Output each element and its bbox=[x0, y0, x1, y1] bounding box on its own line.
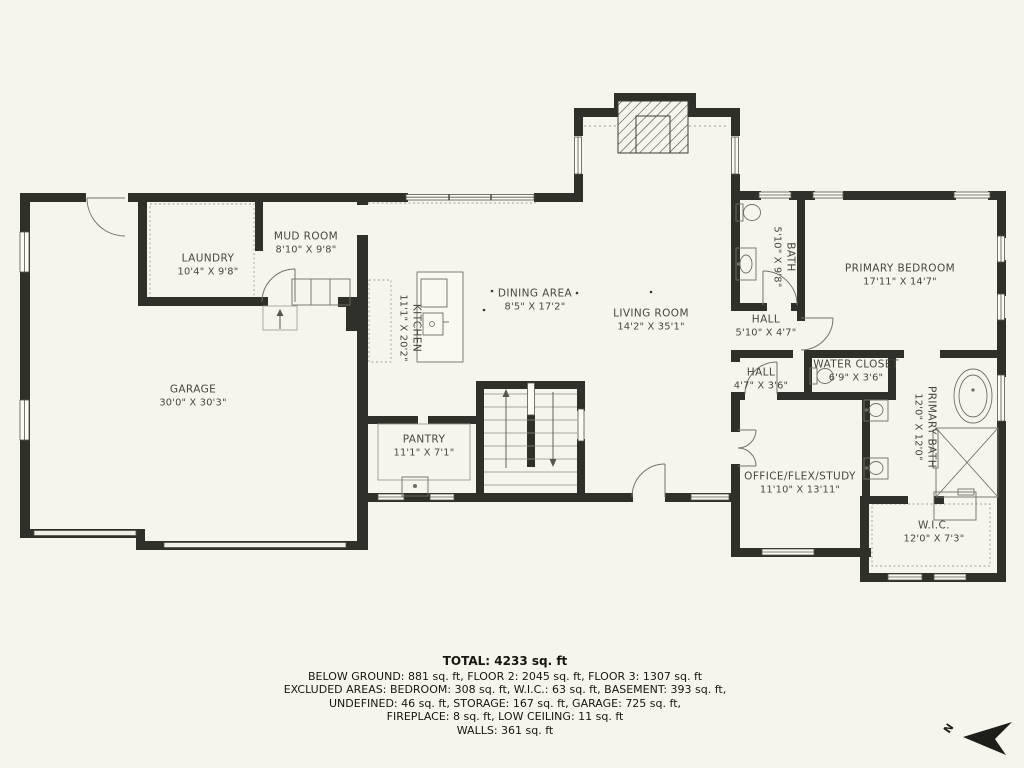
entry-arrow bbox=[277, 309, 284, 316]
room-name: KITCHEN bbox=[409, 294, 423, 361]
room-name: DINING AREA bbox=[498, 288, 572, 302]
room-name: LIVING ROOM bbox=[613, 308, 689, 322]
summary-line: EXCLUDED AREAS: BEDROOM: 308 sq. ft, W.I… bbox=[0, 683, 1010, 697]
room-name: OFFICE/FLEX/STUDY bbox=[744, 471, 856, 485]
soaking-tub bbox=[954, 369, 992, 423]
stairs-up-arrow bbox=[503, 389, 510, 397]
room-dims: 11'1" X 20'2" bbox=[396, 294, 409, 361]
room-name: GARAGE bbox=[159, 384, 226, 398]
room-name: MUD ROOM bbox=[274, 231, 338, 245]
room-name: PANTRY bbox=[394, 434, 455, 448]
room-dims: 10'4" X 9'8" bbox=[178, 266, 239, 279]
room-label-garage: GARAGE 30'0" X 30'3" bbox=[159, 384, 226, 411]
shower bbox=[933, 428, 998, 497]
room-dims: 5'10" X 4'7" bbox=[736, 327, 797, 340]
room-name: WATER CLOSET bbox=[813, 359, 898, 373]
room-label-dining-area: DINING AREA 8'5" X 17'2" bbox=[498, 288, 572, 315]
room-dims: 17'11" X 14'7" bbox=[845, 276, 955, 289]
stair-railing-right bbox=[578, 409, 584, 441]
bedroom-door-arc bbox=[801, 318, 833, 350]
room-label-primary-bedroom: PRIMARY BEDROOM 17'11" X 14'7" bbox=[845, 263, 955, 290]
room-name: PRIMARY BATH bbox=[924, 386, 938, 468]
room-label-primary-bath: PRIMARY BATH 12'0" X 12'0" bbox=[911, 386, 938, 468]
laundry-counter-dashed bbox=[150, 204, 254, 298]
room-label-hall-lower: HALL 4'7" X 3'6" bbox=[734, 367, 788, 394]
front-door-arc bbox=[632, 464, 665, 497]
room-dims: 8'10" X 9'8" bbox=[274, 244, 338, 257]
room-name: W.I.C. bbox=[904, 520, 965, 534]
room-name: PRIMARY BEDROOM bbox=[845, 263, 955, 277]
summary-line: WALLS: 361 sq. ft bbox=[0, 724, 1010, 738]
room-label-hall-upper: HALL 5'10" X 4'7" bbox=[736, 314, 797, 341]
stairs-down-arrow bbox=[550, 459, 557, 467]
stair-railing bbox=[528, 383, 535, 415]
room-dims: 8'5" X 17'2" bbox=[498, 301, 572, 314]
room-label-pantry: PANTRY 11'1" X 7'1" bbox=[394, 434, 455, 461]
room-name: LAUNDRY bbox=[178, 253, 239, 267]
room-label-bath: BATH 5'10" X 9'8" bbox=[770, 227, 797, 288]
room-dims: 14'2" X 35'1" bbox=[613, 321, 689, 334]
room-label-office: OFFICE/FLEX/STUDY 11'10" X 13'11" bbox=[744, 471, 856, 498]
room-dims: 12'0" X 7'3" bbox=[904, 533, 965, 546]
room-label-living-room: LIVING ROOM 14'2" X 35'1" bbox=[613, 308, 689, 335]
area-summary: TOTAL: 4233 sq. ft BELOW GROUND: 881 sq.… bbox=[0, 655, 1010, 738]
room-dims: 30'0" X 30'3" bbox=[159, 397, 226, 410]
summary-line: BELOW GROUND: 881 sq. ft, FLOOR 2: 2045 … bbox=[0, 670, 1010, 684]
room-name: BATH bbox=[783, 227, 797, 288]
room-label-laundry: LAUNDRY 10'4" X 9'8" bbox=[178, 253, 239, 280]
room-label-wic: W.I.C. 12'0" X 7'3" bbox=[904, 520, 965, 547]
walls bbox=[20, 93, 1006, 582]
room-dims: 6'9" X 3'6" bbox=[813, 372, 898, 385]
fireplace bbox=[618, 101, 688, 153]
room-label-kitchen: KITCHEN 11'1" X 20'2" bbox=[396, 294, 423, 361]
room-dims: 11'1" X 7'1" bbox=[394, 447, 455, 460]
room-dims: 5'10" X 9'8" bbox=[770, 227, 783, 288]
summary-total: TOTAL: 4233 sq. ft bbox=[0, 655, 1010, 669]
garage-door-right bbox=[164, 543, 346, 548]
room-dims: 4'7" X 3'6" bbox=[734, 380, 788, 393]
room-dims: 12'0" X 12'0" bbox=[911, 386, 924, 468]
room-name: HALL bbox=[734, 367, 788, 381]
office-door-arc-bottom bbox=[738, 448, 756, 466]
room-name: HALL bbox=[736, 314, 797, 328]
summary-line: UNDEFINED: 46 sq. ft, STORAGE: 167 sq. f… bbox=[0, 697, 1010, 711]
garage-entry-door-arc bbox=[87, 198, 125, 236]
summary-line: FIREPLACE: 8 sq. ft, LOW CEILING: 11 sq.… bbox=[0, 710, 1010, 724]
kitchen-appliance-dashed bbox=[369, 280, 391, 362]
room-label-mud-room: MUD ROOM 8'10" X 9'8" bbox=[274, 231, 338, 258]
garage-door-left bbox=[34, 531, 136, 536]
room-dims: 11'10" X 13'11" bbox=[744, 484, 856, 497]
floor-plan-page: N GARAGE 30'0" X 30'3" LAUNDRY 10'4" X 9… bbox=[0, 0, 1024, 768]
room-label-water-closet: WATER CLOSET 6'9" X 3'6" bbox=[813, 359, 898, 386]
office-door-arc-top bbox=[738, 430, 756, 448]
kitchen-island bbox=[417, 272, 463, 362]
